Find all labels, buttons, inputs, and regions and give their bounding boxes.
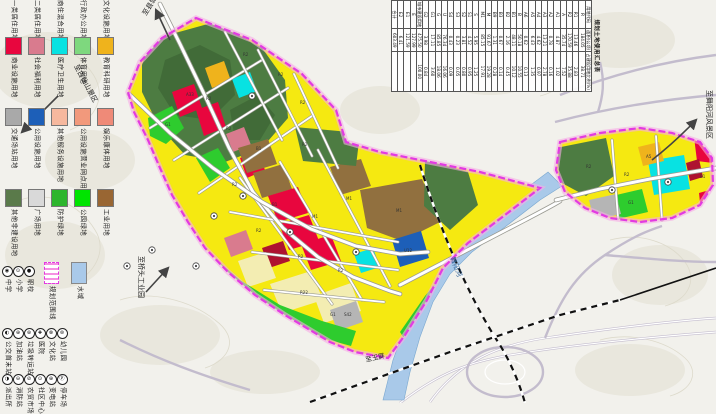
table-cell: 0.14	[498, 52, 504, 92]
table-title: 规划土地使用汇总表	[592, 0, 602, 92]
table-cell: 19.28	[485, 52, 491, 92]
legend-item: 文化设施用地	[94, 0, 116, 41]
legend-swatch	[97, 108, 114, 126]
legend-swatch	[51, 37, 68, 55]
table-cell: 3.81	[460, 29, 466, 52]
table-cell: 13.46	[573, 29, 579, 52]
facility-icon: ⊜	[57, 328, 68, 339]
legend-swatch	[74, 189, 91, 207]
facility-icon: Ⓟ	[57, 374, 68, 385]
legend-swatch	[5, 37, 22, 55]
table-cell: 35.74	[560, 29, 566, 52]
table-cell: 4.87	[554, 29, 560, 52]
table-cell: 16.06	[442, 52, 448, 92]
legend-facility-item: Ⓟ停车场	[56, 374, 68, 407]
table-row: M185.1517.91	[479, 1, 485, 92]
block-code-label: B1	[272, 202, 278, 207]
table-row: A313.212.78	[542, 1, 548, 92]
block-code-label: R2	[232, 182, 238, 187]
legend-item: 公用设施营业网点用地	[71, 108, 93, 196]
legend-swatch	[97, 189, 114, 207]
table-cell: S4	[448, 1, 454, 29]
table-row: A56.431.35	[529, 1, 535, 92]
block-code-label: B1	[256, 146, 262, 151]
block-code-label: R2	[206, 96, 212, 101]
table-cell: 0.97	[535, 52, 541, 92]
legend-swatch	[28, 108, 45, 126]
legend-item: 行政办公用地	[71, 0, 93, 41]
legend-item: 工业用地	[94, 189, 116, 236]
table-cell: 0.67	[498, 29, 504, 52]
block-code-label: M1	[312, 214, 318, 219]
table-row: 合计603.49	[392, 1, 398, 92]
table-cell: S1	[467, 1, 473, 29]
legend-facility-item: ●职校	[23, 266, 35, 293]
table-row: E26.41	[398, 1, 404, 92]
table-row: S30.230.05	[454, 1, 460, 92]
table-row: G117.113.60	[429, 1, 435, 92]
legend-label: 公用设施营业网点用地	[79, 128, 86, 196]
table-cell: 184.05	[579, 29, 585, 52]
table-cell: 0.43	[448, 29, 454, 52]
legend-label: 加油站	[15, 341, 22, 361]
table-cell: 0.62	[523, 29, 529, 52]
legend-label: 二类居住用地	[33, 0, 40, 41]
table-cell	[392, 52, 398, 92]
table-cell: 0.80	[460, 52, 466, 92]
table-row: B148.1110.12	[510, 1, 516, 92]
legend-label: 商住混合用地	[56, 0, 63, 41]
table-cell: A4	[535, 1, 541, 29]
facility-map-icon-dot	[213, 215, 215, 217]
legend-item-boundary: 规划范围线	[40, 262, 62, 320]
facility-icon: ⊛	[24, 328, 35, 339]
table-cell: 0.95	[467, 52, 473, 92]
legend-label: 教育科研用地	[102, 57, 109, 98]
legend-label: 商业设施用地	[10, 57, 17, 98]
table-row: A44.620.97	[535, 1, 541, 92]
legend-item: 公用设施用地	[25, 108, 47, 169]
table-header-cell: 用地代码	[585, 1, 591, 29]
table-cell: 121.59	[404, 29, 410, 52]
table-cell: 0.78	[548, 29, 554, 52]
table-cell: 10.55	[517, 52, 523, 92]
table-cell: 7.52	[560, 52, 566, 92]
table-cell: 0.84	[423, 52, 429, 92]
facility-icon: ◑	[2, 374, 13, 385]
land-use-planning-map: { "palette":{ "residential_yellow":"#f5e…	[0, 0, 716, 403]
legend-swatch	[97, 37, 114, 55]
table-row: A14.871.02	[554, 1, 560, 92]
table-row: E127.99	[410, 1, 416, 92]
legend-label: 规划范围线	[48, 286, 55, 320]
table-row: G85.8518.06	[435, 1, 441, 92]
table-row: E1121.59	[404, 1, 410, 92]
table-cell: E	[410, 1, 416, 29]
table-header-row: 用地代码面积(公顷)占建设用地比例(%)	[585, 1, 591, 92]
facility-icon: ⊘	[24, 374, 35, 385]
table-row: B22.160.45	[504, 1, 510, 92]
legend-item: 其他非建设用地	[2, 189, 24, 257]
legend-item: 社会福利用地	[25, 37, 47, 98]
table-cell: 13.21	[542, 29, 548, 52]
block-code-label: R2	[256, 228, 262, 233]
block-code-label: R2	[302, 142, 308, 147]
table-cell: 合计	[392, 1, 398, 29]
legend-label: 消防站	[15, 387, 22, 407]
legend-swatch	[28, 37, 45, 55]
table-cell: G	[435, 1, 441, 29]
table-cell: 1.02	[554, 52, 560, 92]
legend-item: 广场用地	[25, 189, 47, 236]
legend-label: 体育用地	[79, 57, 86, 84]
table-row: R113.462.83	[573, 1, 579, 92]
table-row: S14.520.95	[467, 1, 473, 92]
facility-icon: ◐	[2, 328, 13, 339]
legend-label: 农贸市场	[26, 387, 33, 414]
table-cell: 100.00	[417, 52, 423, 92]
table-cell: 0.45	[504, 52, 510, 92]
legend-label: 社会福利用地	[33, 57, 40, 98]
facility-icon: ⊕	[46, 374, 57, 385]
facility-map-icon-dot	[611, 189, 613, 191]
table-cell: 5.95	[473, 29, 479, 52]
legend-label: 派出所	[4, 387, 11, 407]
table-cell: 475.50	[417, 29, 423, 52]
boundary-swatch	[44, 262, 59, 284]
table-cell: A2	[548, 1, 554, 29]
table-cell: A5	[529, 1, 535, 29]
facility-map-icon-dot	[242, 195, 244, 197]
table-cell: A6	[523, 1, 529, 29]
table-cell: B2	[504, 1, 510, 29]
legend-label: 小学	[15, 279, 22, 293]
legend-label: 公用设施用地	[33, 128, 40, 169]
block-code-label: M1	[396, 208, 402, 213]
legend-item: 医疗卫生用地	[48, 37, 70, 98]
table-cell	[410, 52, 416, 92]
block-code-label: U12	[404, 248, 412, 253]
table-cell: 城市建设用地	[417, 1, 423, 29]
table-cell: 18.06	[435, 52, 441, 92]
block-code-label: A5	[646, 154, 652, 159]
facility-icon: ⊖	[13, 374, 24, 385]
block-code-label: R2	[338, 268, 344, 273]
legend-label: 文化站	[48, 341, 55, 361]
facility-icon: ⊙	[13, 266, 24, 277]
block-code-label: R2	[624, 172, 630, 177]
table-cell: B	[517, 1, 523, 29]
table-row: G23.980.84	[423, 1, 429, 92]
block-code-label: R2	[300, 100, 306, 105]
table-cell: 48.11	[510, 29, 516, 52]
legend: 一类居住用地二类居住用地商住混合用地行政办公用地文化设施用地商业设施用地社会福利…	[0, 0, 190, 403]
table-cell: S	[473, 1, 479, 29]
table-cell: 3.98	[423, 29, 429, 52]
legend-swatch	[74, 108, 91, 126]
table-cell: A1	[554, 1, 560, 29]
table-cell: 2.78	[542, 52, 548, 92]
block-code-label: R22	[300, 290, 308, 295]
legend-label: 文化设施用地	[102, 0, 109, 41]
table-cell: 35.88	[567, 52, 573, 92]
table-cell: G1	[429, 1, 435, 29]
table-row: A35.747.52	[560, 1, 566, 92]
table-cell: R2	[567, 1, 573, 29]
table-cell: 4.62	[535, 29, 541, 52]
table-cell: R1	[573, 1, 579, 29]
table-cell: 17.91	[479, 52, 485, 92]
legend-label: 停车场	[59, 387, 66, 407]
table-cell: E2	[398, 1, 404, 29]
table-cell: E1	[404, 1, 410, 29]
table-cell: M1	[479, 1, 485, 29]
table-cell: 1.35	[529, 52, 535, 92]
table-row: R184.0538.71	[579, 1, 585, 92]
block-code-label: G1	[330, 312, 336, 317]
facility-icon: ⊗	[46, 328, 57, 339]
facility-icon: ●	[24, 266, 35, 277]
table-cell: 85.15	[479, 29, 485, 52]
table-cell: R	[579, 1, 585, 29]
block-code-label: R2	[226, 126, 232, 131]
table-header-cell: 占建设用地比例(%)	[585, 52, 591, 92]
table-row: A60.620.13	[523, 1, 529, 92]
legend-label: 公交首末站	[4, 341, 11, 375]
table-cell: 50.18	[517, 29, 523, 52]
water-swatch	[71, 262, 87, 284]
table-cell: 170.59	[567, 29, 573, 52]
land-use-summary-table: 规划土地使用汇总表 用地代码面积(公顷)占建设用地比例(%)R184.0538.…	[391, 0, 602, 92]
table-cell: B9	[492, 1, 498, 29]
table-cell: 76.34	[442, 29, 448, 52]
map-label: 至舞阳河风景区	[705, 90, 714, 139]
table-cell: S2	[460, 1, 466, 29]
legend-label: 社区中心	[37, 387, 44, 414]
legend-label: 医院	[37, 341, 44, 355]
facility-map-icon-dot	[667, 181, 669, 183]
legend-swatch	[5, 108, 22, 126]
table-cell: 2.83	[573, 52, 579, 92]
legend-swatch	[51, 189, 68, 207]
legend-swatch	[51, 108, 68, 126]
legend-item-water: 水域	[68, 262, 90, 300]
table-cell	[404, 52, 410, 92]
legend-item: 其他服务设施用地	[48, 108, 70, 182]
table-cell: B3	[498, 1, 504, 29]
block-code-label: R2	[298, 254, 304, 259]
legend-label: 医疗卫生用地	[56, 57, 63, 98]
block-code-label: S42	[344, 312, 352, 317]
legend-label: 水域	[76, 286, 83, 300]
facility-icon: ⊕	[13, 328, 24, 339]
table-cell: A	[560, 1, 566, 29]
legend-item: 防护绿地	[48, 189, 70, 236]
table-cell: 0.05	[454, 52, 460, 92]
table-cell: A3	[542, 1, 548, 29]
table-cell: S3	[454, 1, 460, 29]
legend-label: 变电站	[48, 387, 55, 407]
legend-label: 娱乐康体用地	[102, 128, 109, 169]
table-cell: 3.60	[429, 52, 435, 92]
table-row: U76.3416.06	[442, 1, 448, 92]
legend-item: 体育用地	[71, 37, 93, 84]
legend-label: 工业用地	[102, 209, 109, 236]
table-cell: 85.85	[435, 29, 441, 52]
facility-icon: ✚	[35, 328, 46, 339]
table-cell: U	[442, 1, 448, 29]
legend-item: 娱乐康体用地	[94, 108, 116, 169]
legend-swatch	[28, 189, 45, 207]
legend-label: 广场用地	[33, 209, 40, 236]
legend-item: 交通场站用地	[2, 108, 24, 169]
facility-map-icon-dot	[289, 231, 291, 233]
legend-label: 职校	[26, 279, 33, 293]
table-cell: 1.25	[473, 52, 479, 92]
table-row: M91.6719.28	[485, 1, 491, 92]
table-cell: 0.16	[548, 52, 554, 92]
table-cell: 10.12	[510, 52, 516, 92]
table-cell: B1	[510, 1, 516, 29]
legend-swatch	[5, 189, 22, 207]
legend-label: 其他服务设施用地	[56, 128, 63, 182]
legend-item: 教育科研用地	[94, 37, 116, 98]
legend-label: 公园绿地	[79, 209, 86, 236]
table-cell: 6.43	[529, 29, 535, 52]
table-row: R2170.5935.88	[567, 1, 573, 92]
table-header-cell: 面积(公顷)	[585, 29, 591, 52]
legend-label: 其他非建设用地	[10, 209, 17, 257]
table-row: 城市建设用地475.50100.00	[417, 1, 423, 92]
table-row: S23.810.80	[460, 1, 466, 92]
legend-swatch	[74, 37, 91, 55]
table-cell: 1.31	[492, 29, 498, 52]
facility-map-icon-dot	[251, 95, 253, 97]
table-cell: 91.67	[485, 29, 491, 52]
legend-item: 商住混合用地	[48, 0, 70, 41]
facility-map-icon-dot	[355, 251, 357, 253]
legend-item: 二类居住用地	[25, 0, 47, 41]
legend-item: 公园绿地	[71, 189, 93, 236]
table-cell: 2.16	[504, 29, 510, 52]
block-code-label: M1	[346, 196, 352, 201]
table-cell: 38.71	[579, 52, 585, 92]
table-row: B91.310.28	[492, 1, 498, 92]
facility-icon: ⊙	[35, 374, 46, 385]
block-code-label: R2	[243, 52, 249, 57]
table-row: B50.1810.55	[517, 1, 523, 92]
table-cell	[398, 52, 404, 92]
legend-label: 垃圾转运站	[26, 341, 33, 375]
legend-label: 幼儿园	[59, 341, 66, 361]
legend-label: 防护绿地	[56, 209, 63, 236]
table-cell: 0.09	[448, 52, 454, 92]
legend-item: 一类居住用地	[2, 0, 24, 41]
facility-map-icon-dot	[195, 265, 197, 267]
block-code-label: G1	[628, 200, 634, 205]
legend-item: 商业设施用地	[2, 37, 24, 98]
legend-label: 一类居住用地	[10, 0, 17, 41]
legend-label: 中学	[4, 279, 11, 293]
legend-label: 行政办公用地	[79, 0, 86, 41]
table-cell: 603.49	[392, 29, 398, 52]
block-code-label: B1	[700, 174, 706, 179]
facility-icon: ◉	[2, 266, 13, 277]
table-row: A20.780.16	[548, 1, 554, 92]
legend-facility-item: ⊜幼儿园	[56, 328, 68, 361]
table-cell: G2	[423, 1, 429, 29]
table-cell: 0.28	[492, 52, 498, 92]
table-cell: M	[485, 1, 491, 29]
table-row: S40.430.09	[448, 1, 454, 92]
block-code-label: R2	[278, 72, 284, 77]
table-cell: 17.11	[429, 29, 435, 52]
table-cell: 127.99	[410, 29, 416, 52]
legend-label: 交通场站用地	[10, 128, 17, 169]
table-row: B30.670.14	[498, 1, 504, 92]
table-row: S5.951.25	[473, 1, 479, 92]
table-cell: 0.13	[523, 52, 529, 92]
table-cell: 6.41	[398, 29, 404, 52]
table-cell: 4.52	[467, 29, 473, 52]
table-cell: 0.23	[454, 29, 460, 52]
block-code-label: R2	[586, 164, 592, 169]
